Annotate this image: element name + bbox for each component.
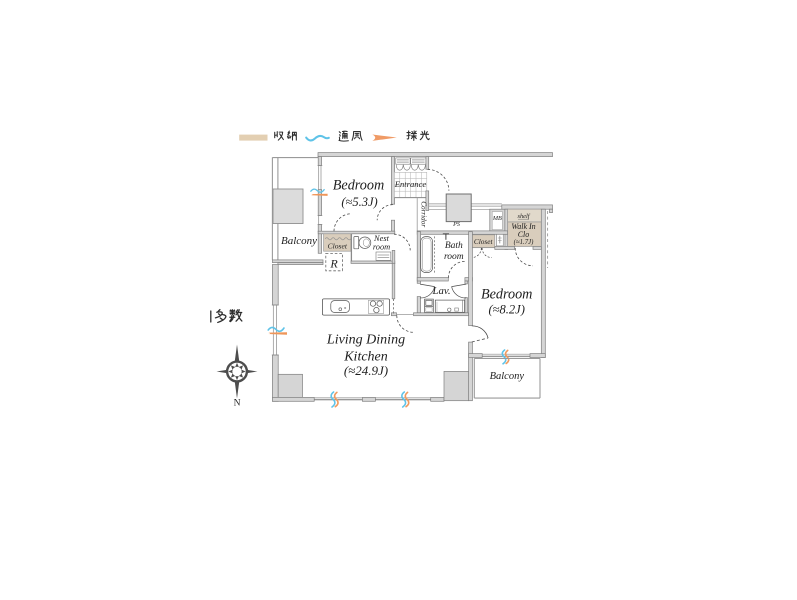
svg-text:MB: MB — [492, 215, 502, 222]
svg-text:room: room — [444, 252, 464, 262]
svg-text:Living Dining: Living Dining — [326, 333, 405, 348]
svg-text:PS: PS — [452, 221, 460, 228]
svg-text:N: N — [234, 399, 241, 409]
svg-text:(≈1.7J): (≈1.7J) — [514, 239, 535, 246]
svg-text:shelf: shelf — [517, 213, 530, 220]
svg-text:Balcony: Balcony — [281, 235, 317, 247]
svg-text:Balcony: Balcony — [490, 371, 525, 382]
svg-text:Closet: Closet — [328, 242, 348, 251]
svg-text:Closet: Closet — [474, 237, 494, 246]
svg-text:Entrance: Entrance — [394, 179, 427, 189]
svg-text:room: room — [373, 242, 390, 251]
svg-text:(≈8.2J): (≈8.2J) — [489, 303, 525, 317]
svg-text:R: R — [329, 257, 338, 271]
svg-text:Bath: Bath — [445, 241, 463, 251]
svg-text:Clo: Clo — [518, 230, 530, 239]
svg-text:(≈24.9J): (≈24.9J) — [344, 363, 388, 378]
svg-text:Bedroom: Bedroom — [481, 287, 533, 303]
svg-text:Bedroom: Bedroom — [333, 178, 385, 194]
svg-text:Corridor: Corridor — [420, 201, 428, 227]
svg-text:(≈5.3J): (≈5.3J) — [341, 195, 377, 209]
svg-text:Lav.: Lav. — [431, 285, 450, 297]
